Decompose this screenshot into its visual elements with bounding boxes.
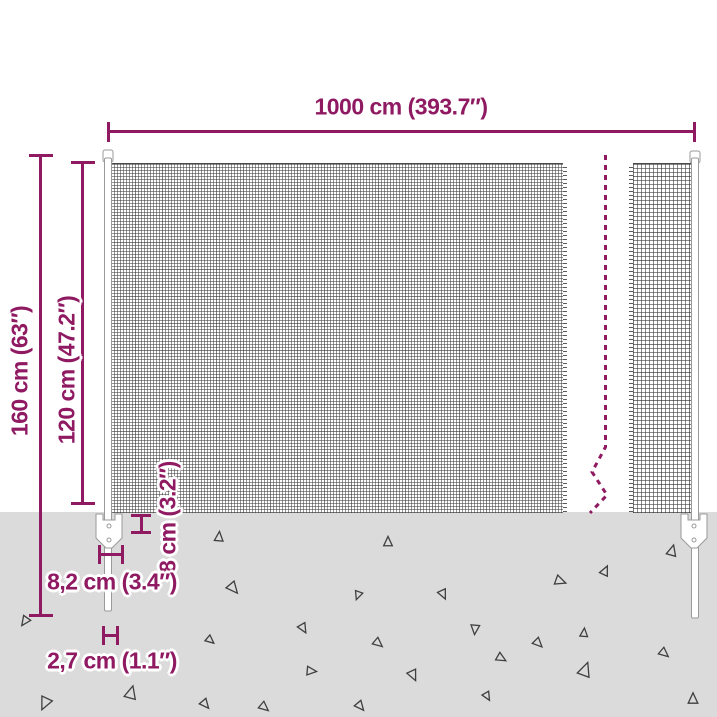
ground-triangle: [258, 701, 271, 714]
ground-triangle: [297, 623, 309, 635]
ground-triangle: [577, 660, 593, 677]
ground-triangle: [372, 637, 385, 650]
ground-triangle: [124, 684, 138, 699]
ground-triangle: [532, 637, 545, 650]
ground-triangle: [353, 591, 363, 601]
ground-triangle: [18, 615, 30, 628]
ground-triangle: [658, 647, 671, 660]
plate-height-dimension-label: 8 cm (3.2″): [155, 461, 182, 573]
spike-width-tick-left: [102, 626, 105, 645]
plate-width-tick-right: [121, 545, 124, 564]
total-height-dimension-line: [39, 155, 42, 616]
fence-mesh-end-piece: [633, 163, 695, 513]
total-height-tick-top: [29, 154, 53, 157]
spike-width-tick-right: [116, 626, 119, 645]
ground-triangle: [554, 575, 567, 588]
ground-triangle: [599, 564, 611, 576]
ground-triangle: [307, 666, 317, 675]
ground-triangle: [354, 700, 367, 713]
ground-triangle: [666, 544, 678, 557]
plate-height-tick-top: [131, 514, 151, 517]
plate-width-dimension-label: 8,2 cm (3.4″): [47, 569, 177, 596]
ground-triangle: [482, 691, 493, 702]
ground-triangle: [37, 696, 53, 712]
fence-height-dimension-label: 120 cm (47.2″): [54, 296, 81, 445]
plate-width-dimension-line: [100, 553, 123, 556]
ground-triangle: [496, 652, 508, 664]
total-height-tick-bottom: [29, 614, 53, 617]
total-height-dimension-label: 160 cm (63″): [7, 306, 34, 436]
fence-dimension-diagram: 1000 cm (393.7″) 160 cm (63″) 120 cm (47…: [0, 0, 717, 717]
ground-triangle: [384, 536, 393, 545]
ground-triangle: [470, 625, 479, 635]
fence-height-tick-bottom: [71, 502, 95, 505]
cut-wire-ends-main: [563, 164, 567, 512]
ground-triangle: [437, 589, 449, 601]
width-dimension-tick-right: [693, 122, 696, 142]
ground-triangle: [580, 628, 588, 637]
plate-height-tick-bottom: [131, 531, 151, 534]
cut-wire-ends-end-piece: [629, 164, 633, 512]
ground-triangle: [407, 669, 420, 682]
ground-triangle: [199, 698, 212, 711]
plate-width-tick-left: [98, 545, 101, 564]
ground-triangle: [688, 693, 698, 703]
ground-triangle: [226, 581, 241, 597]
spike-width-dimension-label: 2,7 cm (1.1″): [47, 648, 177, 675]
width-dimension-tick-left: [107, 122, 110, 142]
width-dimension-line: [108, 130, 695, 133]
ground-triangle: [205, 635, 216, 646]
ground-triangle: [214, 531, 223, 541]
fence-height-tick-top: [71, 161, 95, 164]
width-dimension-label: 1000 cm (393.7″): [314, 94, 487, 121]
fence-height-dimension-line: [81, 162, 84, 505]
